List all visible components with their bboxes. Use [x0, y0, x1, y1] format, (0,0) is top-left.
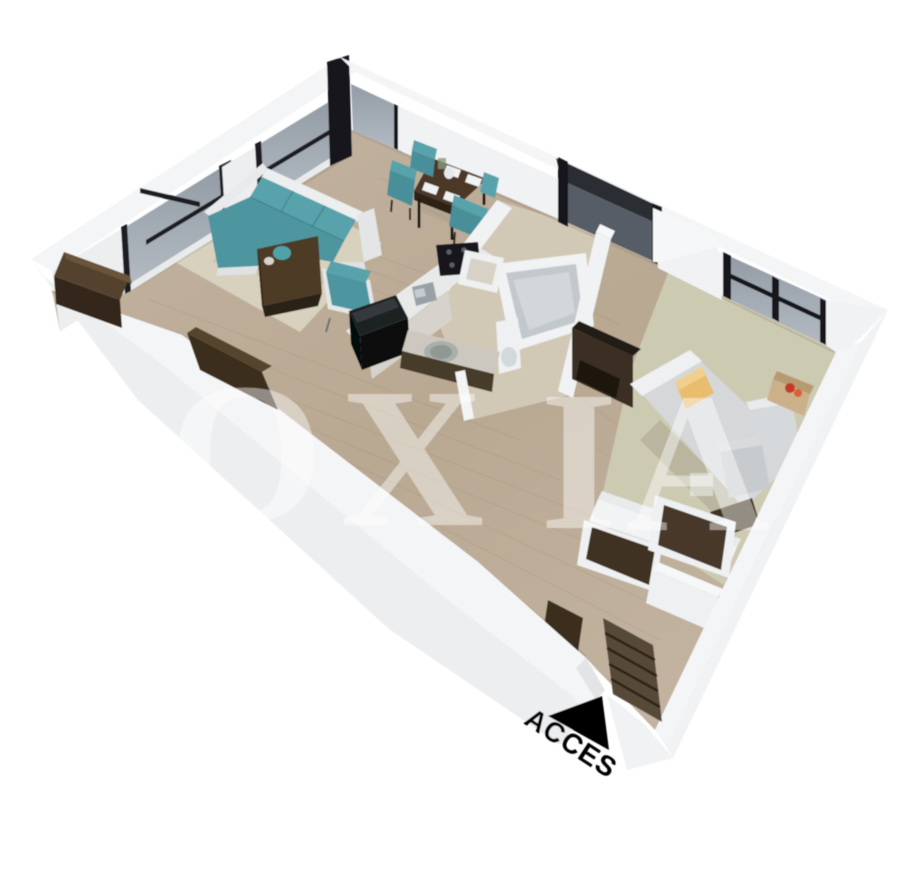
svg-text:A: A: [625, 353, 769, 574]
svg-text:O: O: [168, 343, 324, 564]
svg-text:X: X: [340, 348, 484, 569]
svg-text:I: I: [540, 351, 618, 572]
